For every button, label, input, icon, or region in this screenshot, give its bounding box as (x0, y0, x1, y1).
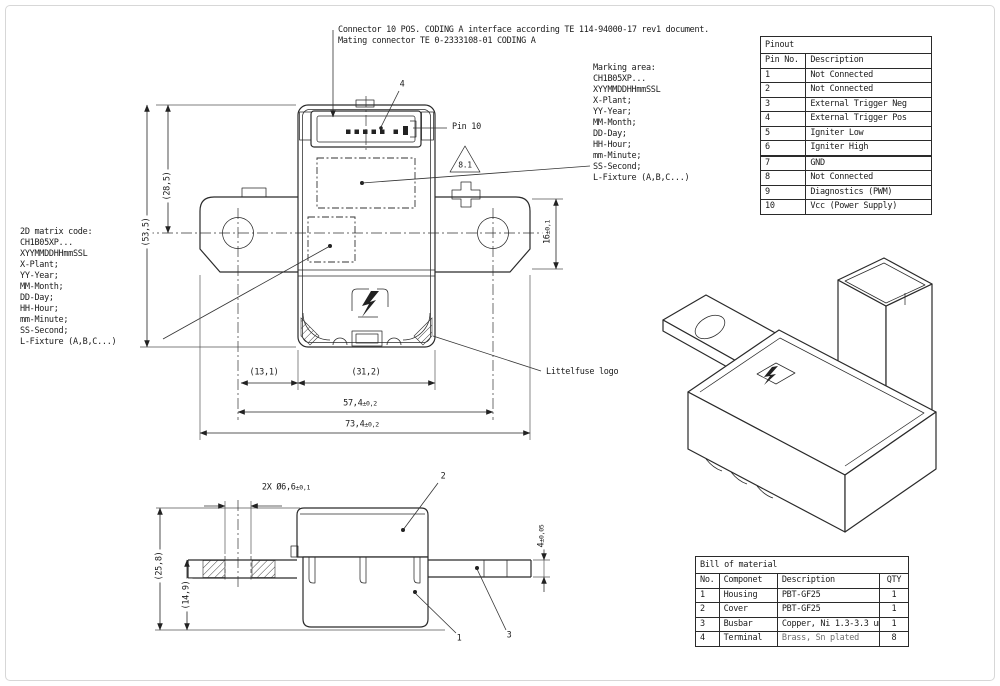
dim-13-1: (13,1) (250, 368, 279, 379)
dim-4-thickness: 4±0,05 (537, 523, 548, 550)
callout-2-cover: 2 (441, 472, 446, 483)
callout-1-housing: 1 (457, 634, 462, 645)
connector-note-line1: Connector 10 POS. CODING A interface acc… (338, 25, 709, 36)
connector-note-line2: Mating connector TE 0-2333108-01 CODING … (338, 36, 536, 47)
table-row: 7GND (761, 157, 931, 172)
engineering-drawing-page: .o1{fill:#fff;stroke:#2a2a2a;stroke-widt… (0, 0, 1000, 686)
callout-4-connector: 4 (400, 80, 405, 91)
table-row: 4TerminalBrass, Sn plated8 (696, 632, 908, 646)
littelfuse-logo-label: Littelfuse logo (546, 367, 618, 378)
table-row: 5Igniter Low (761, 127, 931, 142)
isometric-view-drawing (663, 258, 936, 532)
bom-table: Bill of material No. Componet Descriptio… (695, 556, 909, 647)
table-row: 2CoverPBT-GF251 (696, 603, 908, 618)
dim-hole-dia: 2X Ø6,6±0,1 (262, 483, 310, 494)
callout-3-busbar: 3 (507, 631, 512, 642)
pinout-table: Pinout Pin No. Description 1Not Connecte… (760, 36, 932, 215)
table-row: 9Diagnostics (PWM) (761, 186, 931, 201)
bom-header-row: No. Componet Description QTY (696, 574, 908, 589)
table-row: 10Vcc (Power Supply) (761, 200, 931, 214)
table-row: 6Igniter High (761, 141, 931, 157)
dim-73-4: 73,4±0,2 (345, 420, 379, 431)
table-row: 1HousingPBT-GF251 (696, 589, 908, 604)
dim-16: 16±0,1 (543, 218, 554, 246)
side-view-drawing (155, 483, 550, 633)
dim-31-2: (31,2) (352, 368, 381, 379)
table-row: 1Not Connected (761, 69, 931, 84)
front-view-drawing (140, 30, 590, 440)
pin10-label: Pin 10 (452, 122, 481, 133)
pinout-table-title: Pinout (761, 37, 931, 54)
dim-25-8: (25,8) (155, 550, 166, 583)
bom-table-title: Bill of material (696, 557, 908, 574)
minus-terminal-icon (242, 188, 266, 197)
dim-28-5: (28,5) (163, 170, 174, 203)
table-row: 4External Trigger Pos (761, 112, 931, 127)
warning-ref-label: 8.1 (458, 160, 472, 171)
table-row: 2Not Connected (761, 83, 931, 98)
dim-57-4: 57,4±0,2 (343, 399, 377, 410)
table-row: 8Not Connected (761, 171, 931, 186)
table-row: 3External Trigger Neg (761, 98, 931, 113)
table-row: 3BusbarCopper, Ni 1.3-3.3 um1 (696, 618, 908, 633)
pinout-header-row: Pin No. Description (761, 54, 931, 69)
dim-53-5: (53,5) (142, 216, 153, 249)
dim-14-9: (14,9) (182, 579, 193, 612)
